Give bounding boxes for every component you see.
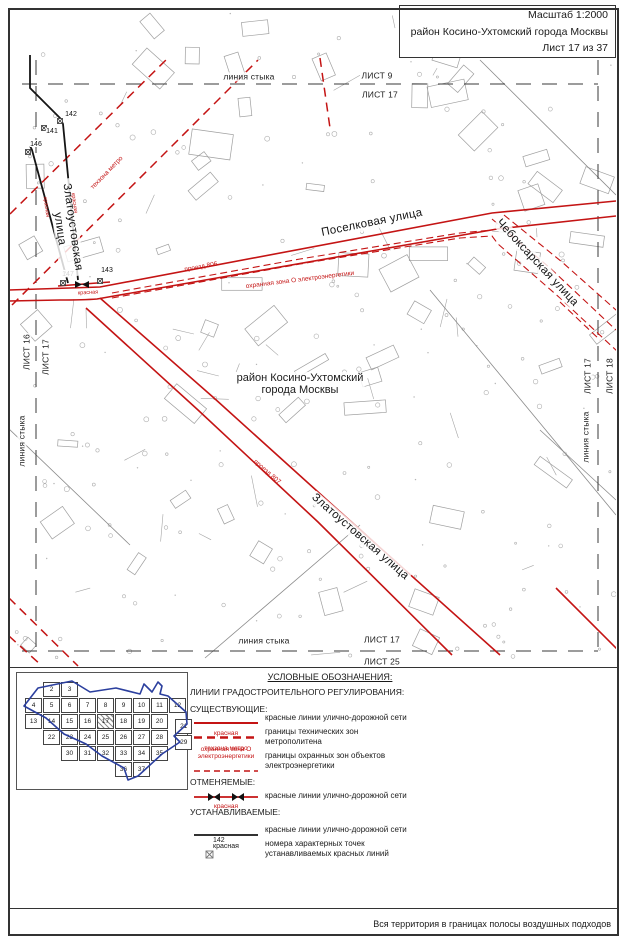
point-marker-146: 146	[26, 141, 42, 155]
sheet-cell-33: 33	[115, 746, 132, 761]
sheet-cell-11: 11	[151, 698, 168, 713]
legend-section: ЛИНИИ ГРАДОСТРОИТЕЛЬНОГО РЕГУЛИРОВАНИЯ:	[190, 687, 404, 697]
legend-desc-established: красные линии улично-дорожной сети	[265, 825, 407, 835]
sheet-cell-14: 14	[43, 714, 60, 729]
sheet-cell-20: 20	[151, 714, 168, 729]
sheet-cell-15: 15	[61, 714, 78, 729]
sheet-cell-9: 9	[115, 698, 132, 713]
stitch-label-right: линия стыка	[581, 410, 590, 463]
sheet-cell-25: 25	[97, 730, 114, 745]
svg-text:143: 143	[101, 267, 113, 274]
sheet-label-16: ЛИСТ 16	[22, 333, 31, 371]
title-block: Масштаб 1:2000 район Косино-Ухтомский го…	[399, 5, 616, 58]
red-dashed-swatch	[194, 734, 258, 741]
point-marker-141: 141	[42, 126, 58, 136]
sheet-label-17-left: ЛИСТ 17	[41, 338, 50, 376]
footer-note: Вся территория в границах полосы воздушн…	[373, 919, 611, 929]
legend-symbol-label: охранная зона О электроэнергетики	[192, 747, 260, 761]
cancelled-line-swatch	[194, 792, 258, 802]
stitch-label-top: линия стыка	[222, 72, 275, 81]
sheet-cell-22: 22	[43, 730, 60, 745]
red-dashed-metro-zone	[9, 56, 330, 666]
sheet-cell-2: 2	[43, 682, 60, 697]
legend-established-heading: УСТАНАВЛИВАЕМЫЕ:	[190, 807, 280, 817]
stitch-dashed-lines	[22, 60, 598, 651]
cadastral-texture	[15, 13, 624, 659]
sheet-cell-29: 29	[175, 735, 192, 750]
district-label: район Косино-Ухтомский города Москвы	[236, 372, 365, 396]
legend-symbol-established: красная	[192, 825, 260, 850]
sheet-cell-13: 13	[25, 714, 42, 729]
sheet-cell-34: 34	[133, 746, 150, 761]
legend-desc-red-line: красные линии улично-дорожной сети	[265, 713, 407, 723]
legend-symbol-label: красная	[192, 843, 260, 850]
krasnaya-label-3: красная	[77, 289, 100, 296]
sheet-cell-17: 17	[97, 714, 114, 729]
sheet-cell-27: 27	[133, 730, 150, 745]
sheet-cell-8: 8	[97, 698, 114, 713]
sheet-cell-18: 18	[115, 714, 132, 729]
svg-text:142: 142	[65, 111, 77, 118]
sheet-cell-10: 10	[133, 698, 150, 713]
sheet-cell-36: 36	[115, 762, 132, 777]
sheet-label-9: ЛИСТ 9	[360, 71, 393, 80]
sheet-cell-30: 30	[61, 746, 78, 761]
sheet-cell-28: 28	[151, 730, 168, 745]
map-scale: Масштаб 1:2000	[400, 7, 608, 24]
legend-desc-energy-zone: границы охранных зон объектов электроэне…	[265, 751, 385, 772]
sheet-cell-19: 19	[133, 714, 150, 729]
sheet-label-17-bot: ЛИСТ 17	[363, 635, 401, 644]
legend-title: УСЛОВНЫЕ ОБОЗНАЧЕНИЯ:	[230, 672, 430, 682]
sheet-cell-21: 21	[175, 719, 192, 734]
sheet-cell-23: 23	[61, 730, 78, 745]
sheet-cell-5: 5	[43, 698, 60, 713]
sheet-cell-3: 3	[61, 682, 78, 697]
sheet-label-18: ЛИСТ 18	[605, 357, 614, 395]
sheet-label-25: ЛИСТ 25	[363, 657, 401, 666]
black-solid-swatch	[194, 832, 258, 838]
map-district: район Косино-Ухтомский города Москвы	[400, 24, 608, 41]
sheet-number: Лист 17 из 37	[400, 40, 608, 57]
sheet-cell-37: 37	[133, 762, 150, 777]
stitch-label-bottom: линия стыка	[237, 636, 290, 645]
legend-desc-cancelled: красные линии улично-дорожной сети	[265, 791, 407, 801]
sheet-index-map: 2345678910111213141516171819202122232425…	[16, 672, 188, 790]
legend-desc-point-numbers: номера характерных точек устанавливаемых…	[265, 839, 389, 860]
legend-cancelled-heading: ОТМЕНЯЕМЫЕ:	[190, 777, 255, 787]
svg-text:141: 141	[46, 128, 58, 135]
sheet-cell-24: 24	[79, 730, 96, 745]
legend-point-number: 142	[213, 837, 225, 844]
sheet-label-17-top: ЛИСТ 17	[361, 90, 399, 99]
svg-text:146: 146	[30, 141, 42, 148]
map-bottom-rule	[8, 667, 617, 668]
stitch-label-left: линия стыка	[17, 414, 26, 467]
sheet-cell-26: 26	[115, 730, 132, 745]
sheet-cell-7: 7	[79, 698, 96, 713]
point-marker-icon	[205, 850, 214, 859]
legend-symbol-energy-zone: охранная зона О электроэнергетики	[192, 747, 260, 779]
footer-rule	[8, 908, 617, 909]
gray-long-lines	[8, 60, 616, 658]
sheet-cell-31: 31	[79, 746, 96, 761]
red-dash-swatch	[194, 768, 258, 774]
sheet-cell-6: 6	[61, 698, 78, 713]
red-solid-line-swatch	[194, 720, 258, 726]
legend-point-marker	[205, 846, 214, 864]
sheet-cell-35: 35	[151, 746, 168, 761]
point-marker-143: 143	[98, 267, 113, 284]
plan-sheet: 142141146147143 линия стыка ЛИСТ 9 ЛИСТ …	[0, 0, 625, 942]
sheet-cell-32: 32	[97, 746, 114, 761]
sheet-label-17-right: ЛИСТ 17	[583, 357, 592, 395]
sheet-cell-12: 12	[169, 698, 186, 713]
legend-desc-metro-zone: границы технических зон метрополитена	[265, 727, 358, 748]
sheet-cell-16: 16	[79, 714, 96, 729]
sheet-cell-4: 4	[25, 698, 42, 713]
